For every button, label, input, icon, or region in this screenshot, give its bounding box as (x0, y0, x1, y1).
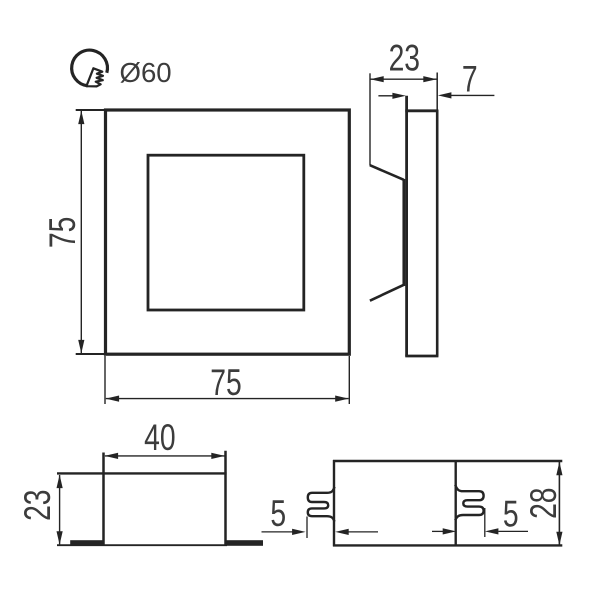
svg-text:7: 7 (462, 58, 478, 100)
svg-text:28: 28 (522, 487, 564, 518)
svg-text:75: 75 (210, 361, 241, 403)
svg-text:5: 5 (270, 493, 286, 535)
svg-text:5: 5 (503, 493, 519, 535)
svg-text:23: 23 (389, 37, 420, 79)
svg-text:23: 23 (16, 489, 58, 520)
svg-text:40: 40 (144, 416, 175, 458)
svg-text:Ø60: Ø60 (120, 57, 172, 88)
svg-text:75: 75 (41, 217, 83, 248)
